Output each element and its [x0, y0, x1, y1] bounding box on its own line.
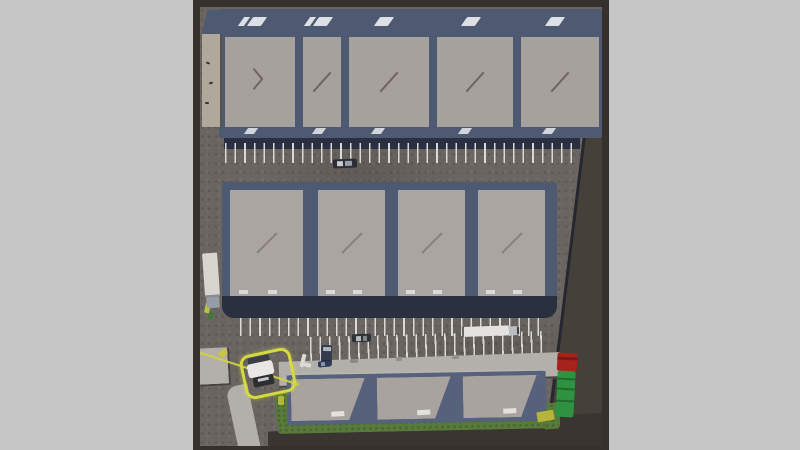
car-lower-lot[interactable]	[352, 334, 371, 343]
box-truck-lower-lot-part	[464, 325, 509, 337]
aerial-scene[interactable]	[200, 7, 602, 446]
semi-trailer-parked-west-part	[202, 253, 220, 296]
car-lower-lot-part	[352, 334, 371, 343]
pickup-truck-north-lot[interactable]	[333, 159, 357, 169]
service-truck-red-green[interactable]	[553, 351, 578, 418]
pickup-truck-north-lot-part	[345, 161, 352, 166]
semi-trailer-parked-west-part	[206, 297, 220, 309]
pickup-truck-north-lot-part	[337, 161, 343, 166]
car-lower-lot-part	[363, 335, 367, 340]
car-lower-lot-part	[356, 336, 361, 341]
vehicles-layer	[200, 7, 602, 446]
semi-trailer-parked-west[interactable]	[201, 252, 222, 309]
car-on-apron[interactable]	[318, 360, 331, 367]
car-on-apron-part	[321, 362, 325, 366]
selected-truck[interactable]	[245, 353, 278, 390]
van-parked-lower-lot-part	[323, 347, 331, 351]
service-truck-red-green-part	[557, 353, 578, 372]
box-truck-lower-lot[interactable]	[462, 324, 519, 338]
box-truck-lower-lot-part	[517, 327, 519, 334]
aerial-viewport-frame	[193, 0, 609, 450]
